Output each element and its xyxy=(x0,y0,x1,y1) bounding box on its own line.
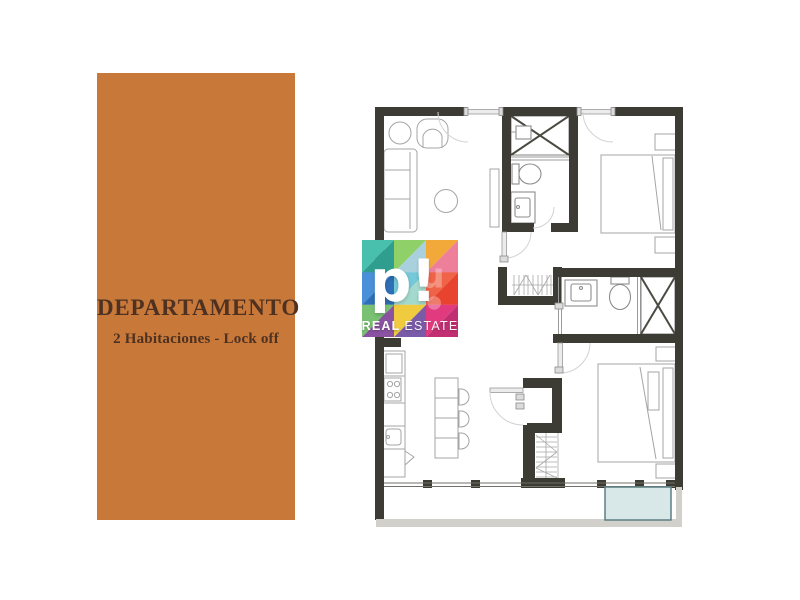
cabinet-icon xyxy=(490,169,499,227)
sofa-icon xyxy=(384,149,417,232)
side-table-icon xyxy=(435,190,458,213)
toilet-icon xyxy=(512,164,519,184)
kitchen-furniture xyxy=(383,351,469,477)
listing-slide: DEPARTAMENTO 2 Habitaciones - Lock off xyxy=(0,0,800,600)
bedroom2-furniture xyxy=(598,347,676,478)
storage-door-icon xyxy=(490,388,523,393)
bed-icon xyxy=(601,155,675,233)
balcony xyxy=(376,487,682,527)
bar-stool-icon xyxy=(459,411,469,427)
nightstand-icon xyxy=(655,134,676,150)
bathroom1-door-icon xyxy=(502,232,507,259)
listing-card-text: DEPARTAMENTO 2 Habitaciones - Lock off xyxy=(97,295,295,348)
suite-door-icon xyxy=(581,110,612,115)
brand-word-real: REAL xyxy=(362,319,401,333)
brand-watermark: u p! REAL ESTATE xyxy=(362,240,458,337)
listing-subtitle: 2 Habitaciones - Lock off xyxy=(97,331,295,348)
nightstand-icon xyxy=(656,347,676,361)
bathroom2-fixtures xyxy=(565,277,675,334)
lounge-chair-icon xyxy=(389,122,411,144)
hall-closet-icon xyxy=(512,275,553,295)
bar-stool-icon xyxy=(459,389,469,405)
nightstand-icon xyxy=(655,237,676,253)
bathroom1-fixtures xyxy=(508,116,569,223)
brand-word-estate: ESTATE xyxy=(404,319,458,333)
entry-door-icon xyxy=(468,110,500,115)
listing-card: DEPARTAMENTO 2 Habitaciones - Lock off xyxy=(97,73,295,520)
nightstand-icon xyxy=(656,464,676,478)
living-room-furniture xyxy=(384,119,499,232)
toilet-icon xyxy=(611,277,629,284)
armchair-icon xyxy=(417,119,448,148)
listing-title: DEPARTAMENTO xyxy=(97,295,295,321)
bar-stool-icon xyxy=(459,433,469,449)
bedroom1-furniture xyxy=(601,134,676,253)
logo-brand: REAL ESTATE xyxy=(362,319,458,333)
bedroom2-closet-icon xyxy=(536,433,558,478)
plunge-pool-icon xyxy=(605,487,671,520)
